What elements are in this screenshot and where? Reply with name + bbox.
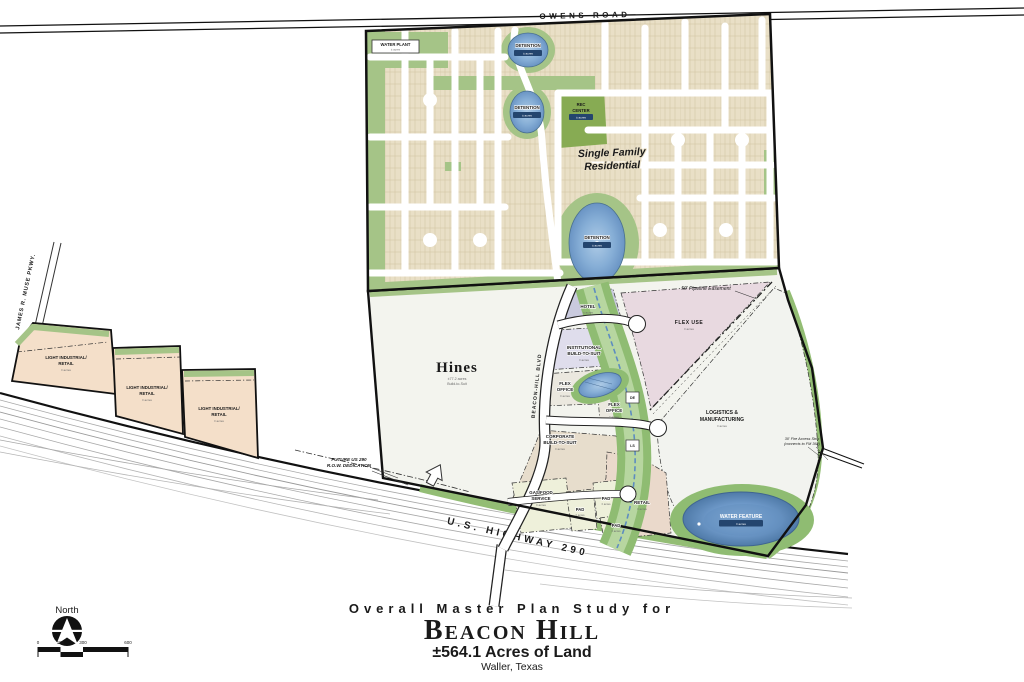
scale-600: 600 (124, 640, 132, 645)
pad-3-acres: ± acres (611, 529, 621, 533)
residential-area: WATER PLANT ± acres DETENTION ± acres DE… (360, 8, 786, 296)
future-row-label2: R.O.W. DEDICATION (327, 463, 372, 468)
logistics-label: LOGISTICS & (706, 410, 738, 416)
ls-marker-label: LS (630, 444, 635, 448)
flex-use-acres: ± acres (684, 327, 694, 331)
pad-2-acres: ± acres (601, 502, 611, 506)
hotel-acres: ± acres (583, 311, 593, 315)
flex-use-label: FLEX USE (675, 320, 704, 326)
single-family-label2: Residential (584, 159, 641, 173)
hines-label: Hines (436, 360, 478, 376)
hines-acres: ±77.2 acres (448, 377, 467, 381)
flex-office-1-label2: OFFICE (557, 387, 574, 392)
cul-de-sac-1 (629, 316, 646, 333)
water-plant-label: WATER PLANT (381, 42, 411, 47)
title-location: Waller, Texas (481, 661, 543, 673)
light-industrial-3-label: LIGHT INDUSTRIAL/ (198, 406, 240, 411)
institutional-label: INSTITUTIONAL (567, 345, 601, 350)
cul-de-sac-2 (650, 420, 667, 437)
retail-acres: ± acres (637, 507, 647, 511)
logistics-acres: ± acres (717, 424, 727, 428)
light-industrial-2-label2: RETAIL (139, 391, 155, 396)
pad-1-acres: ± acres (575, 513, 585, 517)
detention-1-label: DETENTION (515, 43, 540, 48)
de-marker-label: DE (630, 396, 636, 400)
water-feature-label: WATER FEATURE (720, 514, 763, 520)
flex-office-2-label: FLEX (608, 402, 620, 407)
access-strip-label: 30' Fire Access Strip (785, 437, 820, 441)
rec-center-label2: CENTER (572, 108, 589, 113)
rec-center-label: REC (577, 102, 586, 107)
title-block: Overall Master Plan Study for Beacon Hil… (349, 601, 675, 673)
light-industrial-1-label: LIGHT INDUSTRIAL/ (45, 355, 87, 360)
hines-sub-label: Build-to-Suit (447, 382, 467, 386)
james-muse-pkwy-label: JAMES R. MUSE PKWY. (15, 253, 37, 330)
flex-office-1-acres: ± acres (560, 394, 570, 398)
light-industrial-parcels: JAMES R. MUSE PKWY. LIGHT INDUSTRIAL/ RE… (12, 242, 258, 458)
gas-food-acres: ± acres (536, 503, 546, 507)
master-plan-map: U.S. HIGHWAY 290 OWENS ROAD JAMES R. MUS… (0, 0, 1024, 682)
gas-food-label: GAS/FOOD (529, 490, 552, 495)
corporate-acres: ± acres (555, 447, 565, 451)
institutional-acres: ± acres (579, 358, 589, 362)
scale-150: 150 (57, 640, 65, 645)
water-plant-acres: ± acres (391, 48, 401, 52)
water-feature-acres: ± acres (736, 522, 746, 526)
gas-food-label2: SERVICE (531, 496, 550, 501)
pad-1-label: PAD (576, 507, 585, 512)
beacon-hill-blvd-south-leg (494, 545, 502, 606)
flex-office-2-acres: ± acres (609, 415, 619, 419)
pipeline-easement-label: 50' Pipeline Easement (681, 286, 731, 292)
access-strip-road (818, 448, 864, 468)
future-row-label: FUTURE US 290 (331, 457, 367, 462)
light-industrial-3-acres: ± acres (214, 419, 224, 423)
light-industrial-2-acres: ± acres (142, 398, 152, 402)
detention-3-acres: ± acres (592, 244, 602, 248)
pad-3-label: PAD (612, 523, 621, 528)
scale-0: 0 (37, 640, 40, 645)
flex-office-1-label: FLEX (559, 381, 571, 386)
north-label: North (55, 605, 78, 616)
light-industrial-1-acres: ± acres (61, 368, 71, 372)
corporate-label2: BUILD-TO-SUIT (543, 440, 576, 445)
logistics-label2: MANUFACTURING (700, 417, 744, 423)
light-industrial-2-label: LIGHT INDUSTRIAL/ (126, 385, 168, 390)
scale-bar: 0 150 300 600 (37, 640, 133, 657)
retail-label: RETAIL (634, 500, 650, 505)
title-acreage: ±564.1 Acres of Land (432, 644, 591, 661)
access-strip-label2: (connects to FM 362) (784, 442, 821, 446)
detention-2-acres: ± acres (522, 114, 532, 118)
light-industrial-3-label2: RETAIL (211, 412, 227, 417)
flex-office-2-label2: OFFICE (606, 408, 623, 413)
detention-2-label: DETENTION (514, 105, 539, 110)
light-industrial-parcel-2 (113, 346, 183, 434)
single-family-label: Single Family (578, 146, 647, 160)
corporate-label: CORPORATE (546, 434, 574, 439)
institutional-label2: BUILD-TO-SUIT (567, 351, 600, 356)
light-industrial-1-label2: RETAIL (58, 361, 74, 366)
rec-center-acres: ± acres (576, 116, 586, 120)
title-project-name: Beacon Hill (424, 615, 600, 646)
hotel-label: HOTEL (580, 304, 596, 309)
pad-2-label: PAD (602, 496, 611, 501)
detention-1-acres: ± acres (523, 52, 533, 56)
master-plan-page: U.S. HIGHWAY 290 OWENS ROAD JAMES R. MUS… (0, 0, 1024, 682)
detention-3-label: DETENTION (584, 235, 609, 240)
title-line-1: Overall Master Plan Study for (349, 601, 675, 616)
scale-300: 300 (79, 640, 87, 645)
